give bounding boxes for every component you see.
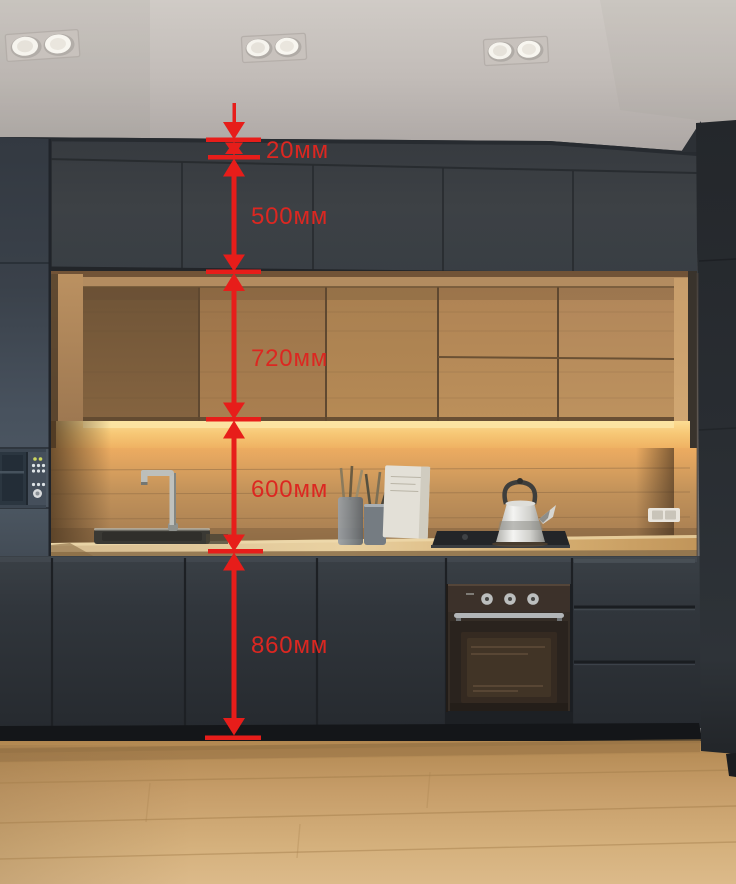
- svg-text:500мм: 500мм: [251, 203, 328, 230]
- svg-text:860мм: 860мм: [251, 632, 328, 659]
- svg-text:20мм: 20мм: [266, 137, 329, 164]
- svg-text:600мм: 600мм: [251, 476, 328, 503]
- svg-text:720мм: 720мм: [251, 345, 328, 372]
